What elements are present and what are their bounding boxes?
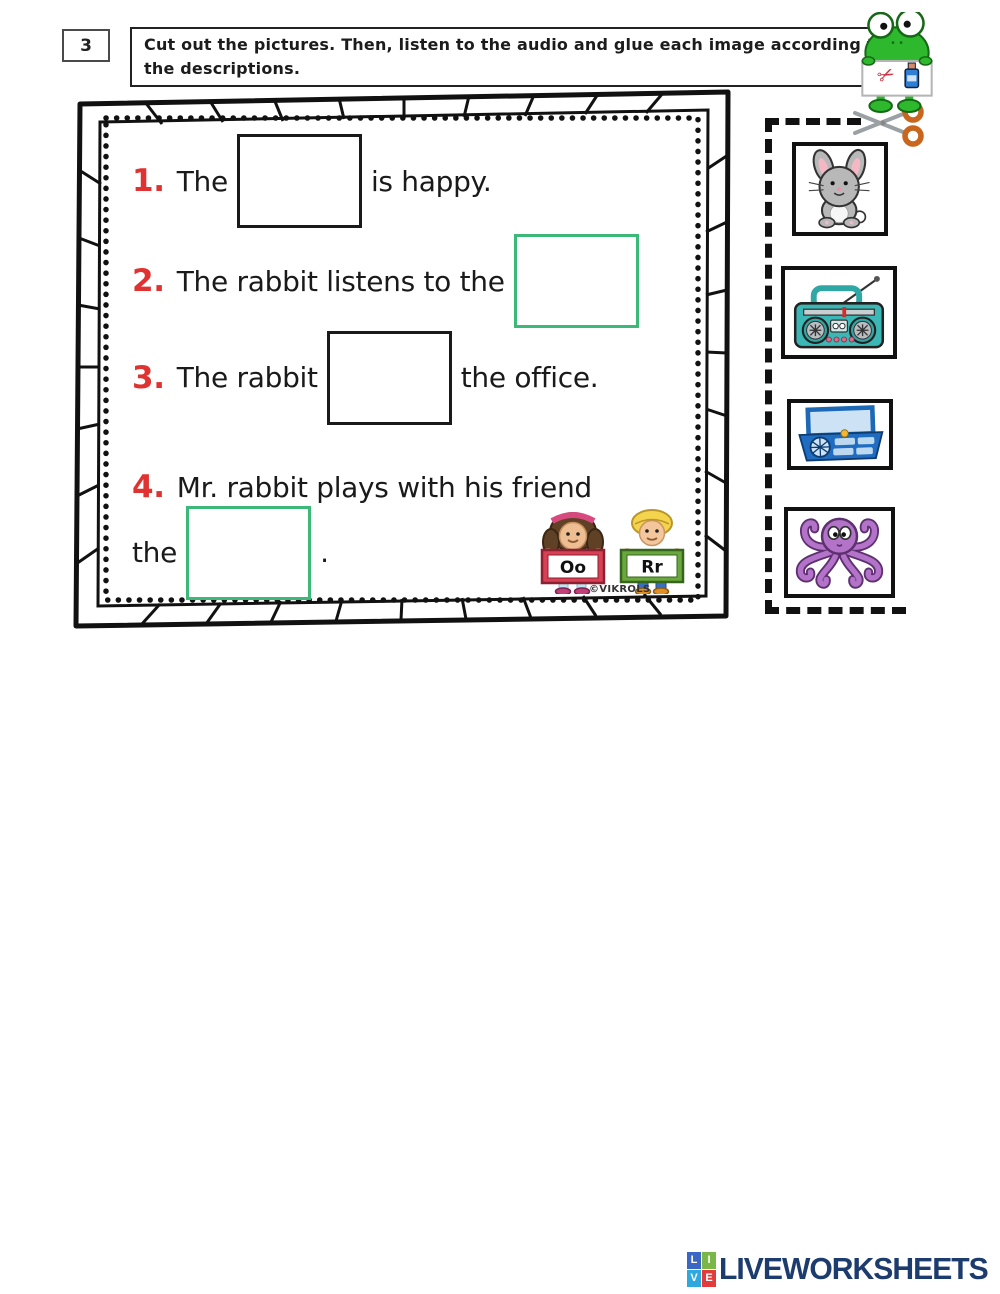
sentence-4-text-before: the (132, 536, 177, 569)
sentence-2: 2. The rabbit listens to the (132, 232, 639, 330)
answer-blank-4[interactable] (186, 506, 311, 600)
liveworksheets-logo-text: LIVEWORKSHEETS (719, 1251, 988, 1287)
octopus-icon (790, 513, 889, 592)
sentence-3-text-after: the office. (461, 361, 599, 394)
instruction-line2: the descriptions. (144, 57, 912, 81)
sentence-3-text-before: The rabbit (177, 361, 318, 394)
sentence-2-number: 2. (132, 263, 165, 299)
cut-line-top (765, 118, 861, 125)
logo-square-v: V (687, 1270, 701, 1287)
cut-line-left (765, 118, 772, 614)
sentence-4-line2: the . (132, 505, 329, 600)
sentence-3: 3. The rabbit the office. (132, 330, 598, 425)
worksheet-frame: 1. The is happy. 2. The rabbit listens t… (70, 88, 735, 630)
cut-line-bottom (765, 607, 906, 614)
boy-with-rr-card: Rr (615, 508, 689, 594)
sentence-4-text-after: . (320, 536, 329, 569)
rabbit-icon (798, 148, 882, 230)
sentence-1-text-before: The (177, 165, 228, 198)
sentence-3-number: 3. (132, 360, 165, 396)
worksheet-page: 3 Cut out the pictures. Then, listen to … (0, 0, 1000, 1294)
sentence-1-number: 1. (132, 163, 165, 199)
cutout-image-rabbit[interactable] (792, 142, 888, 236)
cutout-image-radio[interactable] (781, 266, 897, 359)
answer-blank-1[interactable] (237, 134, 362, 228)
liveworksheets-logo-grid: L I V E (687, 1252, 716, 1287)
frog-mascot-icon: ✂ (856, 12, 938, 114)
answer-blank-2[interactable] (514, 234, 639, 328)
cutout-panel (765, 118, 906, 614)
sentence-2-text-before: The rabbit listens to the (177, 265, 505, 298)
letter-card-oo: Oo (560, 558, 586, 578)
office-icon (793, 405, 887, 464)
instruction-line1: Cut out the pictures. Then, listen to th… (144, 33, 912, 57)
credit-text: ©VIKROLS (589, 584, 650, 595)
instruction-box: Cut out the pictures. Then, listen to th… (130, 27, 914, 87)
exercise-number-box: 3 (62, 29, 110, 62)
sentence-4-text-line1: Mr. rabbit plays with his friend (177, 471, 592, 504)
cutout-image-octopus[interactable] (784, 507, 895, 598)
letter-card-rr: Rr (641, 558, 663, 578)
answer-blank-3[interactable] (327, 331, 452, 425)
sentence-1-text-after: is happy. (371, 165, 492, 198)
sentence-4-number: 4. (132, 469, 165, 505)
exercise-number: 3 (80, 36, 92, 56)
radio-icon (787, 273, 891, 353)
liveworksheets-logo: L I V E LIVEWORKSHEETS (687, 1251, 996, 1287)
sentence-4-line1: 4. Mr. rabbit plays with his friend (132, 464, 592, 510)
logo-square-l: L (687, 1252, 701, 1269)
logo-square-i: I (702, 1252, 716, 1269)
sentence-1: 1. The is happy. (132, 134, 491, 228)
logo-square-e: E (702, 1270, 716, 1287)
cutout-image-office[interactable] (787, 399, 893, 470)
girl-with-oo-card: Oo (533, 508, 613, 594)
